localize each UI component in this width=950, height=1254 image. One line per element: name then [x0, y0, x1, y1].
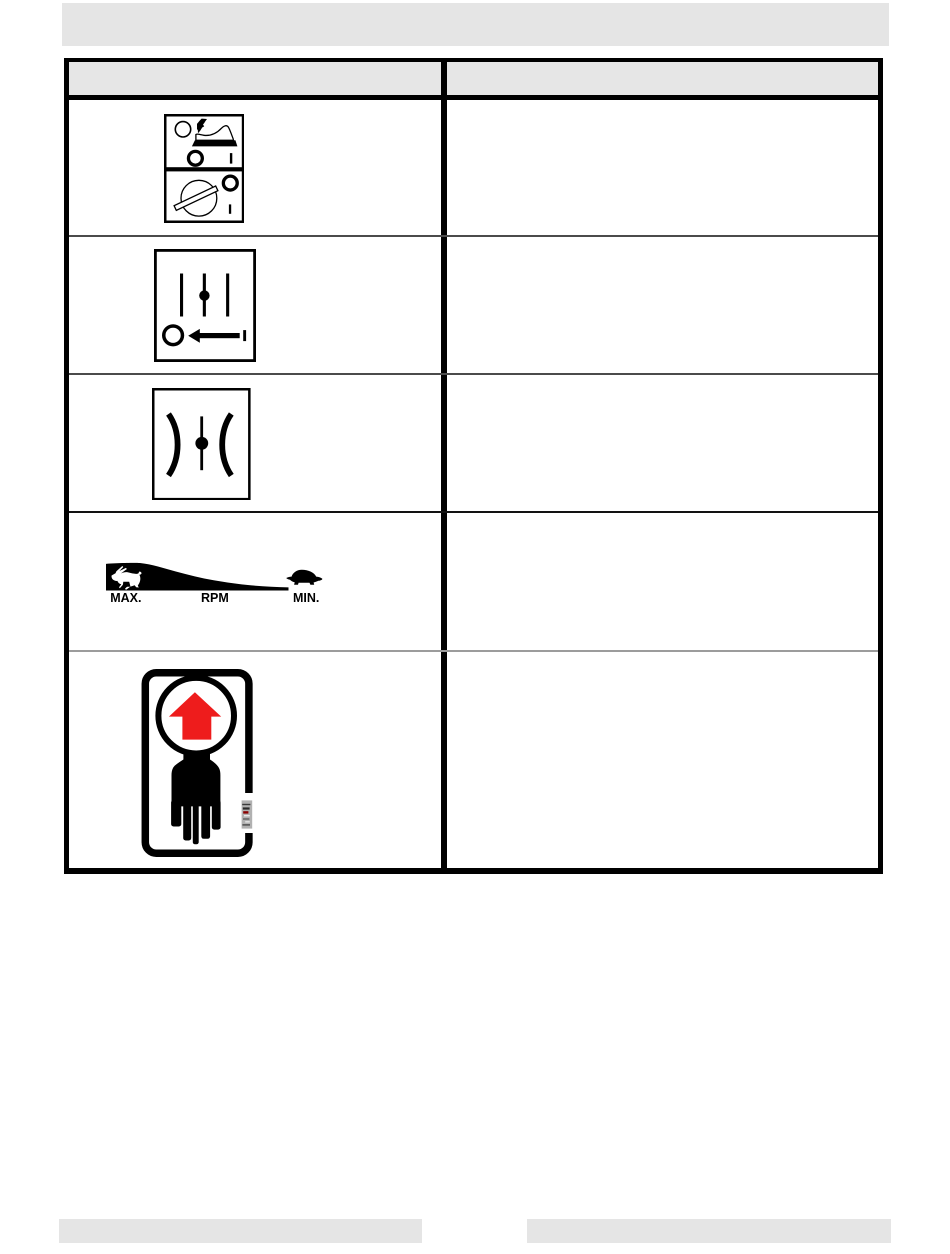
svg-text:MIN.: MIN. — [293, 591, 319, 605]
svg-text:RPM: RPM — [201, 591, 229, 605]
svg-text:MAX.: MAX. — [110, 591, 141, 605]
